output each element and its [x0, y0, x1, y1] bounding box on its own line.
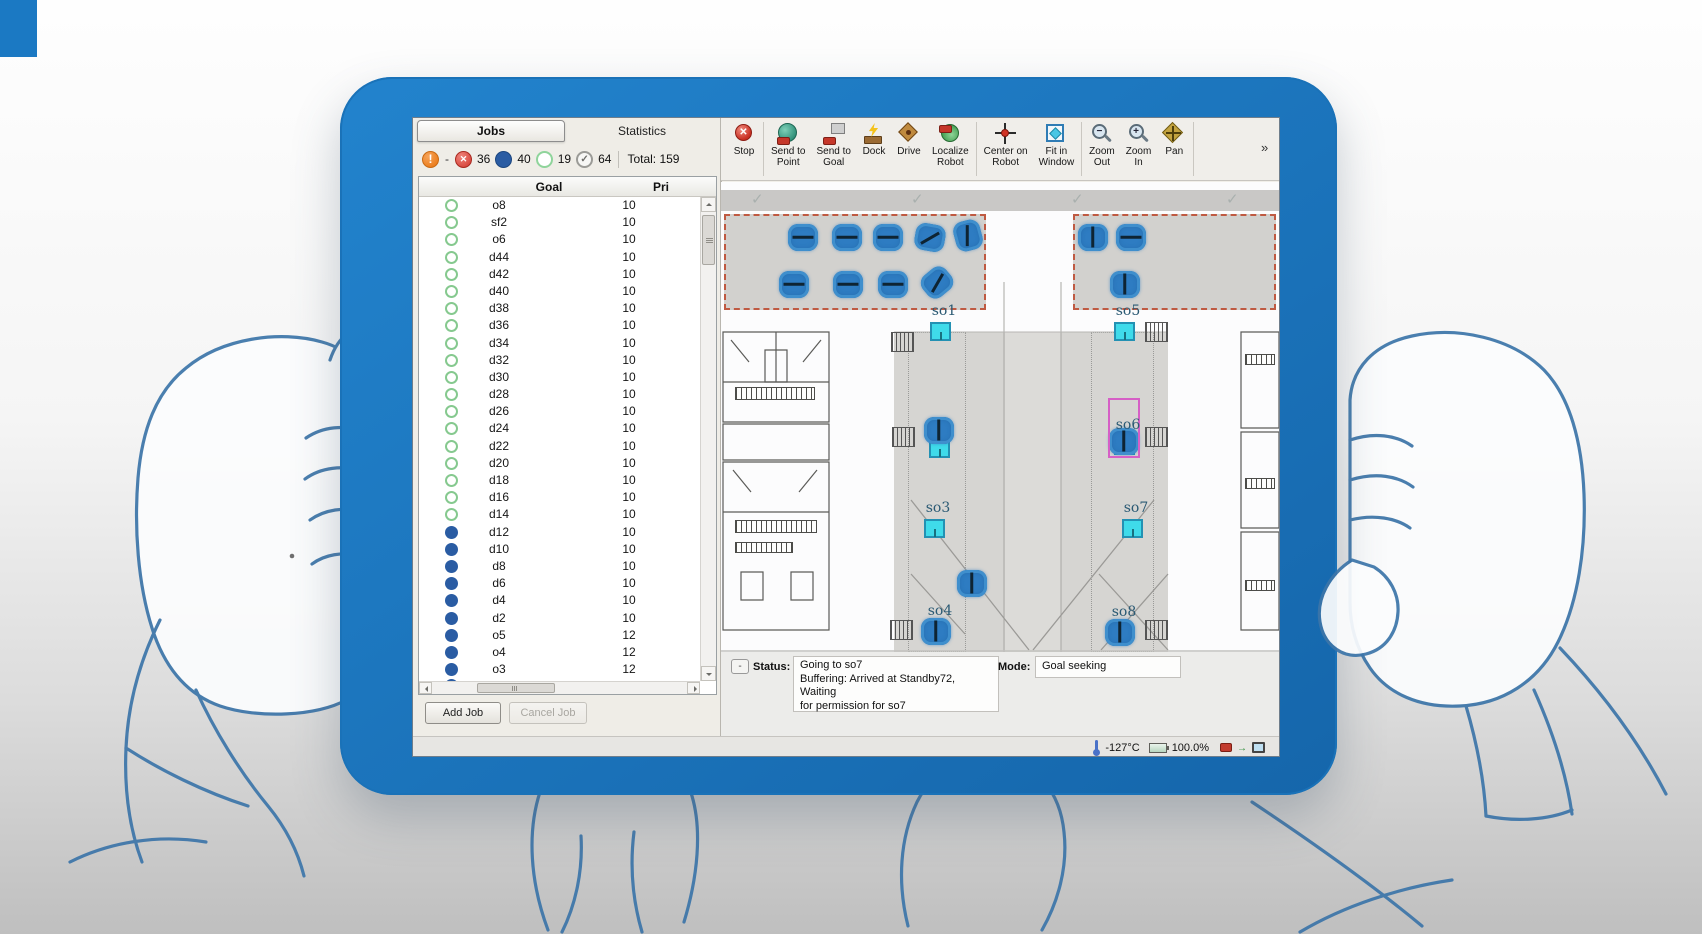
scene: Jobs Statistics - 36 40 19 64 Total: 159	[0, 0, 1702, 934]
corner-blue-artifact	[0, 0, 37, 57]
right-thumb-illustration	[0, 0, 1702, 934]
